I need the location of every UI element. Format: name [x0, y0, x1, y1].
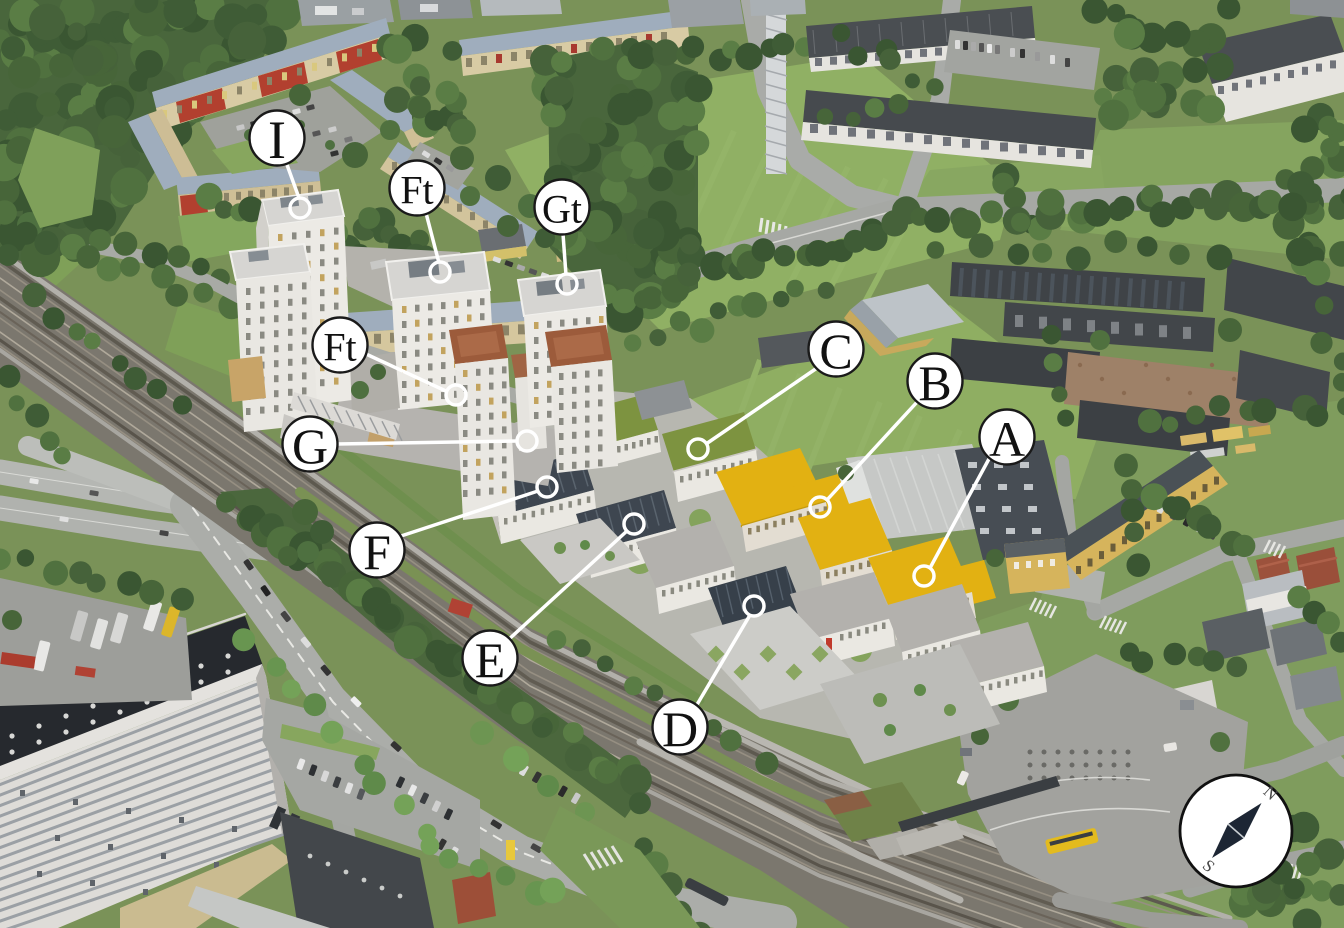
svg-text:E: E	[475, 632, 506, 688]
svg-text:F: F	[363, 524, 391, 580]
svg-text:D: D	[662, 701, 698, 757]
svg-text:A: A	[989, 411, 1025, 467]
svg-text:Ft: Ft	[323, 325, 356, 370]
svg-text:I: I	[268, 110, 286, 170]
svg-text:G: G	[292, 418, 328, 474]
svg-text:Ft: Ft	[400, 168, 433, 213]
svg-text:Gt: Gt	[542, 187, 582, 232]
svg-text:B: B	[918, 355, 951, 411]
svg-text:C: C	[819, 323, 852, 379]
